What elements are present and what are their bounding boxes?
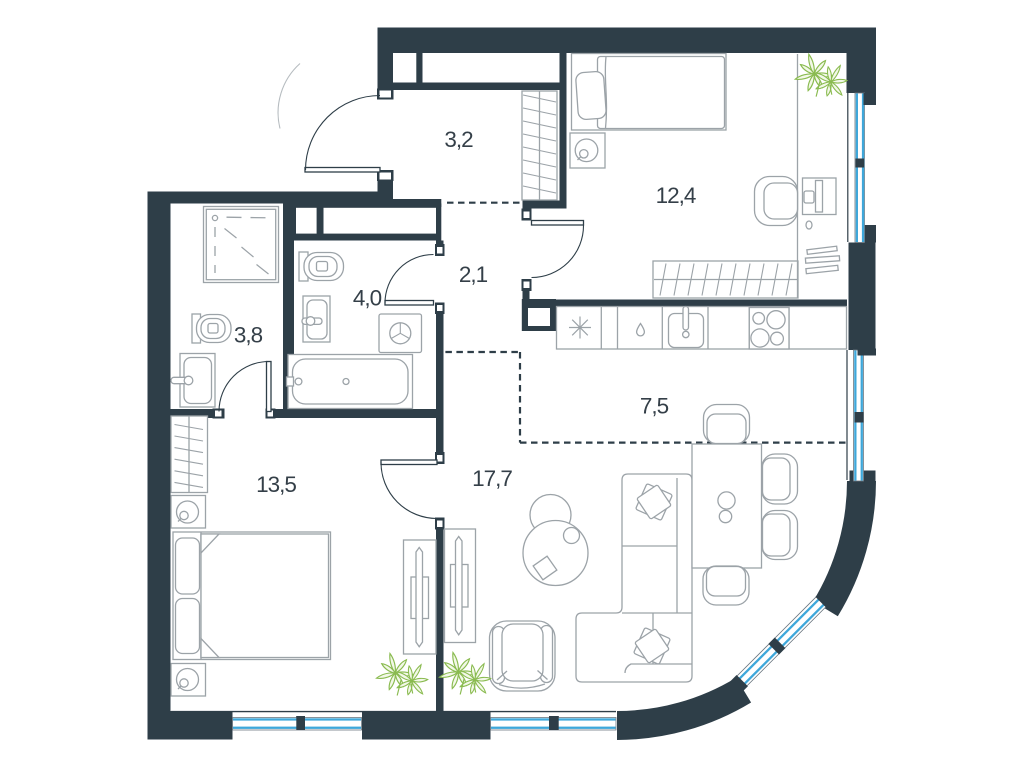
svg-text:4,0: 4,0	[353, 286, 382, 311]
svg-text:3,8: 3,8	[234, 323, 263, 348]
svg-text:12,4: 12,4	[656, 183, 696, 208]
svg-text:13,5: 13,5	[256, 472, 296, 497]
svg-text:17,7: 17,7	[472, 466, 512, 491]
svg-text:2,1: 2,1	[459, 262, 488, 287]
svg-text:3,2: 3,2	[444, 127, 473, 152]
svg-text:7,5: 7,5	[640, 394, 669, 419]
